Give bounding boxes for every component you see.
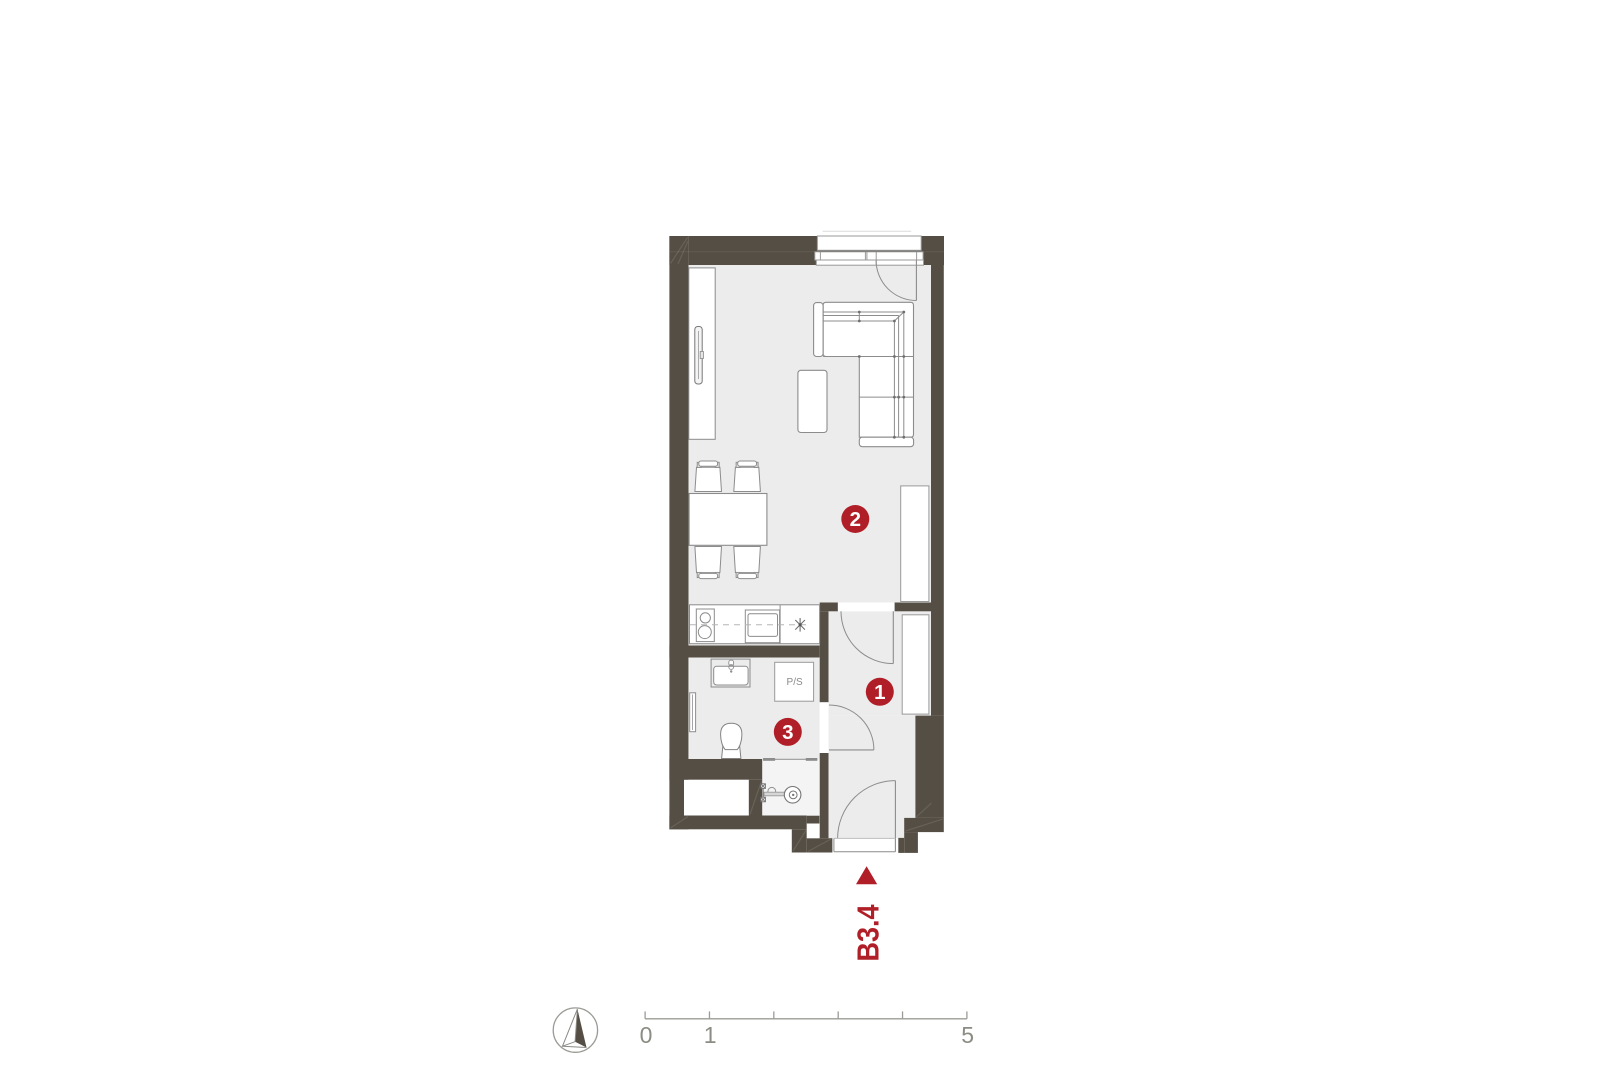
svg-text:1: 1 — [704, 1022, 717, 1048]
svg-text:P/S: P/S — [787, 677, 803, 688]
svg-text:3: 3 — [782, 721, 793, 744]
svg-text:5: 5 — [961, 1022, 974, 1048]
svg-text:1: 1 — [874, 681, 885, 704]
svg-text:2: 2 — [850, 508, 861, 531]
svg-text:B3.4: B3.4 — [852, 904, 886, 961]
svg-text:0: 0 — [640, 1022, 653, 1048]
